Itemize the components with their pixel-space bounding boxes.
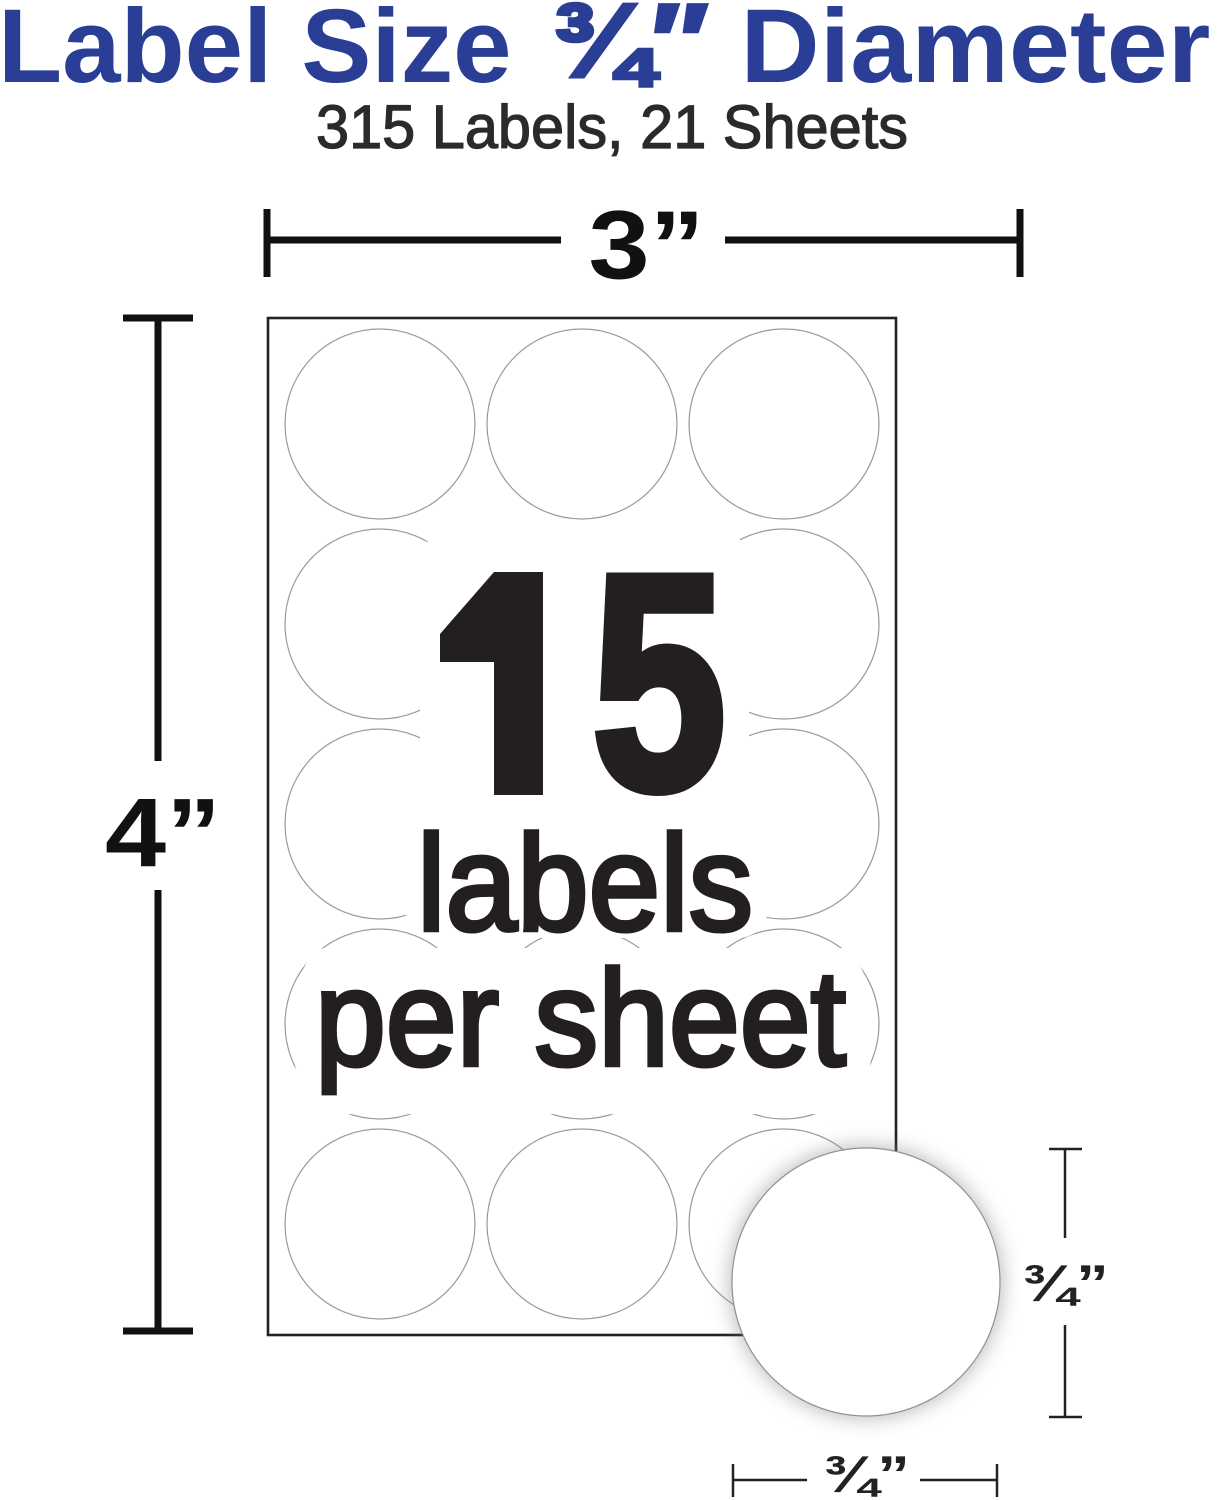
svg-text:Label Size: Label Size: [0, 0, 512, 105]
svg-text:¾”: ¾”: [823, 1446, 910, 1500]
svg-text:per sheet: per sheet: [315, 942, 846, 1094]
svg-text:¾”: ¾”: [1022, 1255, 1109, 1313]
svg-text:5: 5: [592, 511, 726, 853]
svg-text:3”: 3”: [589, 191, 705, 300]
svg-text:315 Labels, 21 Sheets: 315 Labels, 21 Sheets: [316, 93, 908, 161]
svg-text:¾″: ¾″: [552, 0, 709, 100]
svg-text:4”: 4”: [105, 778, 221, 887]
svg-text:labels: labels: [417, 807, 753, 959]
svg-text:Diameter: Diameter: [740, 0, 1210, 105]
